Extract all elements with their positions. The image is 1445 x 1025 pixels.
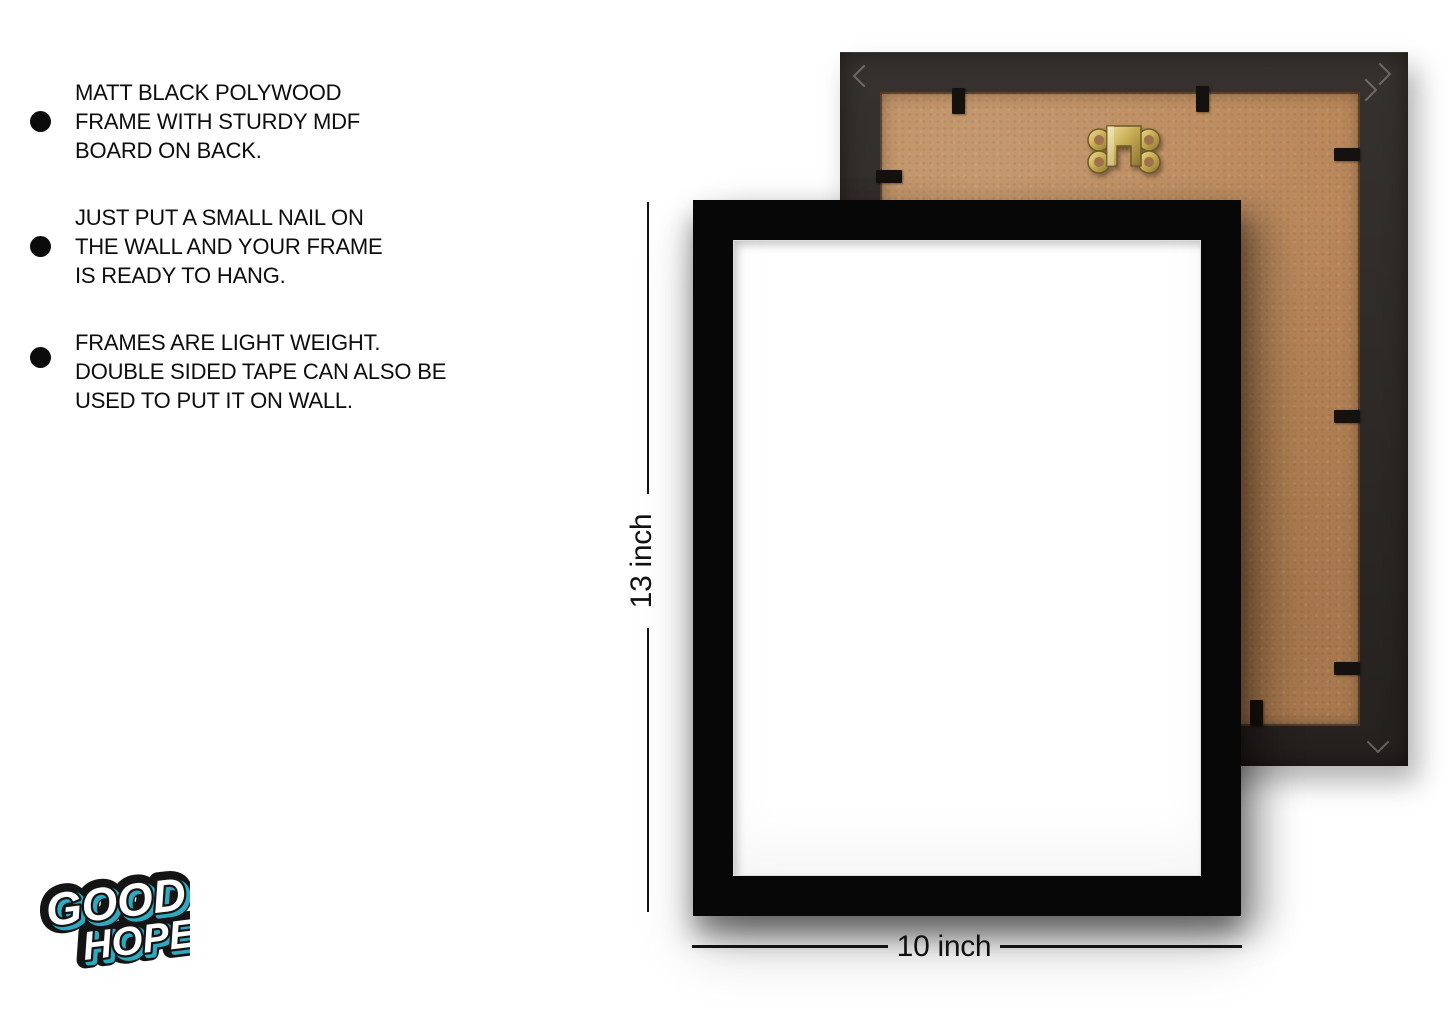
feature-line: DOUBLE SIDED TAPE CAN ALSO BE: [75, 357, 446, 386]
v-nail-mark: [1367, 731, 1390, 754]
width-dimension-line: [692, 945, 888, 948]
mounting-clip: [1196, 86, 1209, 112]
feature-line: FRAMES ARE LIGHT WEIGHT.: [75, 328, 446, 357]
feature-line: THE WALL AND YOUR FRAME: [75, 232, 383, 261]
feature-line: USED TO PUT IT ON WALL.: [75, 386, 446, 415]
v-nail-mark: [1369, 63, 1392, 86]
feature-text: JUST PUT A SMALL NAIL ON THE WALL AND YO…: [75, 203, 383, 290]
mounting-clip: [876, 170, 902, 183]
feature-text: FRAMES ARE LIGHT WEIGHT. DOUBLE SIDED TA…: [75, 328, 446, 415]
good-hope-logo: GOOD HOPE GOOD HOPE GOOD HOPE: [40, 868, 190, 976]
hanging-hook-icon: [1085, 120, 1163, 182]
feature-list: MATT BLACK POLYWOOD FRAME WITH STURDY MD…: [30, 78, 460, 453]
width-dimension-line: [1000, 945, 1242, 948]
feature-line: FRAME WITH STURDY MDF: [75, 107, 360, 136]
width-dimension-label: 10 inch: [897, 930, 992, 964]
frame-opening: [733, 240, 1201, 876]
feature-line: BOARD ON BACK.: [75, 136, 360, 165]
bullet-icon: [30, 347, 51, 368]
frame-product-image: MATT BLACK POLYWOOD FRAME WITH STURDY MD…: [0, 0, 1445, 1025]
feature-item-material: MATT BLACK POLYWOOD FRAME WITH STURDY MD…: [30, 78, 460, 165]
height-dimension-line: [647, 202, 649, 494]
mounting-clip: [1250, 700, 1263, 726]
height-dimension-label: 13 inch: [625, 514, 659, 609]
mounting-clip: [952, 88, 965, 114]
v-nail-mark: [853, 65, 876, 88]
feature-line: IS READY TO HANG.: [75, 261, 383, 290]
mounting-clip: [1334, 410, 1360, 423]
feature-item-weight: FRAMES ARE LIGHT WEIGHT. DOUBLE SIDED TA…: [30, 328, 460, 415]
feature-item-hanging: JUST PUT A SMALL NAIL ON THE WALL AND YO…: [30, 203, 460, 290]
bullet-icon: [30, 236, 51, 257]
feature-line: MATT BLACK POLYWOOD: [75, 78, 360, 107]
feature-text: MATT BLACK POLYWOOD FRAME WITH STURDY MD…: [75, 78, 360, 165]
bullet-icon: [30, 111, 51, 132]
mounting-clip: [1334, 662, 1360, 675]
frame-front-view: [693, 200, 1241, 916]
feature-line: JUST PUT A SMALL NAIL ON: [75, 203, 383, 232]
mounting-clip: [1334, 148, 1360, 161]
height-dimension-line: [647, 628, 649, 912]
